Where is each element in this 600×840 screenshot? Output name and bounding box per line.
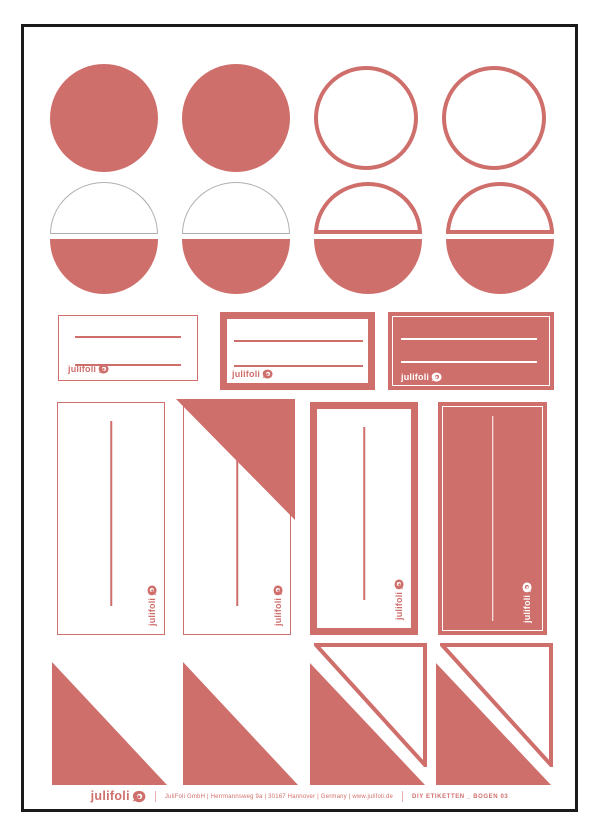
bird-icon [431, 372, 442, 382]
writing-line [401, 361, 537, 363]
bird-icon [522, 582, 532, 593]
sticker-writing-label-filled: julifoli [388, 312, 554, 390]
split-circles-row [50, 182, 554, 294]
sticker-circle-solid [182, 64, 290, 172]
sticker-tall-label-thick: julifoli [310, 402, 418, 635]
sticker-triangle-pair [436, 643, 556, 785]
bird-icon [147, 585, 157, 596]
triangle-solid [310, 663, 425, 785]
sticker-split-circle-thin [182, 182, 290, 294]
writing-line-vertical [363, 427, 365, 600]
triangle-solid [436, 663, 551, 785]
julifoli-logo-text: julifoli [401, 373, 429, 382]
writing-line-vertical [236, 421, 238, 606]
split-circle-bottom-half [182, 239, 290, 294]
split-circle-bottom-half [314, 239, 422, 294]
julifoli-logo: julifoli [147, 585, 157, 626]
sticker-split-circle-thin [50, 182, 158, 294]
split-circle-top-half [314, 182, 422, 234]
julifoli-logo: julifoli [232, 369, 273, 379]
julifoli-logo-text: julifoli [274, 598, 283, 626]
sheet-frame: julifoli julifoli julifoli julifoli [21, 24, 578, 812]
bird-icon [98, 364, 109, 374]
julifoli-logo-text: julifoli [68, 365, 96, 374]
circles-row [50, 64, 546, 172]
sticker-writing-label-thick: julifoli [220, 312, 375, 390]
footer-divider [155, 791, 156, 802]
sticker-triangle-pair [310, 643, 430, 785]
footer-divider [402, 791, 403, 802]
julifoli-logo-text: julifoli [91, 790, 130, 803]
julifoli-logo: julifoli [273, 585, 283, 626]
julifoli-logo-text: julifoli [232, 370, 260, 379]
writing-line [234, 365, 363, 367]
bird-icon [262, 369, 273, 379]
split-circle-top-half [182, 182, 290, 234]
split-circle-bottom-half [50, 239, 158, 294]
writing-line [75, 336, 181, 338]
sticker-circle-solid [50, 64, 158, 172]
page-background: { "brand": { "logo_text": "julifoli" }, … [0, 0, 600, 840]
julifoli-logo-text: julifoli [395, 592, 404, 620]
bird-icon [394, 579, 404, 590]
julifoli-logo: julifoli [401, 372, 442, 382]
sticker-split-circle-thick [446, 182, 554, 294]
sticker-circle-outline [314, 66, 418, 170]
sticker-tall-label-thin: julifoli [57, 402, 165, 635]
sticker-triangle-solid [52, 662, 167, 785]
julifoli-logo-rotated: julifoli [393, 566, 405, 620]
julifoli-logo-rotated: julifoli [521, 569, 533, 623]
julifoli-logo-text: julifoli [148, 598, 157, 626]
julifoli-logo: julifoli [394, 579, 404, 620]
sticker-tall-label-corner-fold: julifoli [183, 402, 291, 635]
split-circle-bottom-half [446, 239, 554, 294]
footer-julifoli-logo: julifoli [91, 790, 146, 803]
julifoli-logo: julifoli [68, 364, 109, 374]
julifoli-logo: julifoli [522, 582, 532, 623]
split-circle-top-half [50, 182, 158, 234]
bird-icon [273, 585, 283, 596]
sticker-split-circle-thick [314, 182, 422, 294]
bird-icon [132, 790, 146, 803]
writing-line [401, 338, 537, 340]
footer-sheet-label: DIY ETIKETTEN _ BOGEN 03 [412, 794, 508, 800]
sticker-tall-label-filled: julifoli [438, 402, 547, 635]
julifoli-logo-rotated: julifoli [272, 572, 284, 626]
footer: julifoli JuliFoli GmbH | Herrmannsweg 9a… [24, 790, 575, 803]
writing-line-vertical [110, 421, 112, 606]
writing-line [234, 340, 363, 342]
julifoli-logo-text: julifoli [523, 595, 532, 623]
sticker-circle-outline [442, 66, 546, 170]
sticker-writing-label-thin: julifoli [58, 315, 198, 381]
julifoli-logo-rotated: julifoli [146, 572, 158, 626]
split-circle-top-half [446, 182, 554, 234]
footer-company-line: JuliFoli GmbH | Herrmannsweg 9a | 30167 … [165, 794, 393, 800]
sticker-triangle-solid [183, 662, 298, 785]
writing-line-vertical [492, 416, 494, 621]
